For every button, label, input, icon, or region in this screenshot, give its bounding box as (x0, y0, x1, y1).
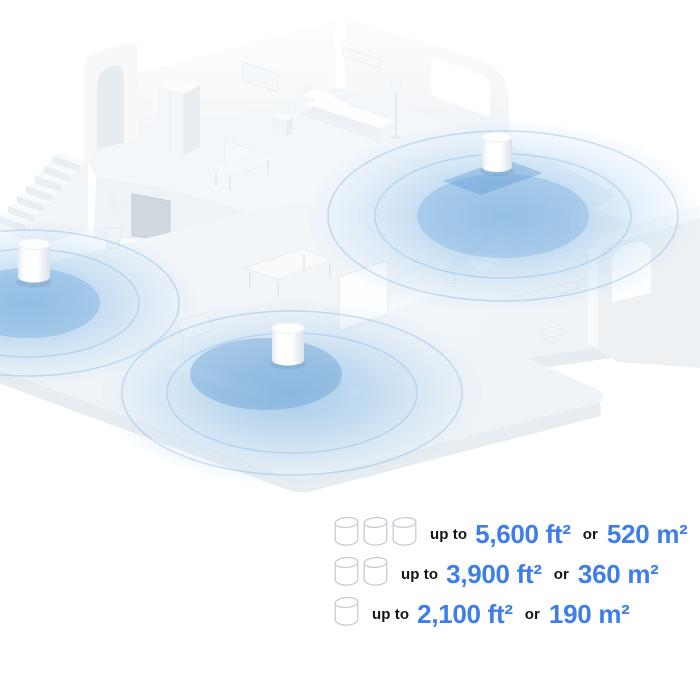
legend-row-three-pack: up to 5,600 ft² or 520 m² (333, 516, 688, 547)
imperial-area-value: 2,100 ft² (417, 601, 513, 627)
prefix-label: up to (372, 606, 409, 623)
conjunction-label: or (583, 526, 598, 543)
imperial-area-value: 3,900 ft² (446, 561, 542, 587)
wardrobe (158, 78, 200, 156)
imperial-area-value: 5,600 ft² (475, 521, 571, 547)
deco-unit-icon (333, 516, 360, 547)
legend-row-two-pack: up to 3,900 ft² or 360 m² (333, 556, 688, 587)
metric-area-value: 190 m² (549, 601, 630, 627)
deco-unit-icon (333, 556, 360, 587)
deco-unit-icons (333, 556, 389, 587)
legend-row-one-pack: up to 2,100 ft² or 190 m² (333, 596, 688, 627)
deco-unit-icon (362, 556, 389, 587)
deco-unit-icon (391, 516, 418, 547)
router-unit-left (16, 239, 52, 288)
conjunction-label: or (554, 566, 569, 583)
home-coverage-illustration (0, 0, 700, 505)
deco-unit-icons (333, 596, 360, 627)
coverage-legend: up to 5,600 ft² or 520 m² up to 3,900 ft… (333, 516, 688, 627)
house-svg (0, 0, 700, 505)
metric-area-value: 360 m² (578, 561, 659, 587)
deco-unit-icons (333, 516, 418, 547)
router-unit-top-right (480, 132, 514, 176)
deco-unit-icon (362, 516, 389, 547)
router-rug (190, 338, 342, 410)
router-unit-center (270, 323, 306, 370)
wall-niche (132, 194, 170, 240)
deco-unit-icon (333, 596, 360, 627)
prefix-label: up to (401, 566, 438, 583)
metric-area-value: 520 m² (607, 521, 688, 547)
conjunction-label: or (525, 606, 540, 623)
prefix-label: up to (430, 526, 467, 543)
